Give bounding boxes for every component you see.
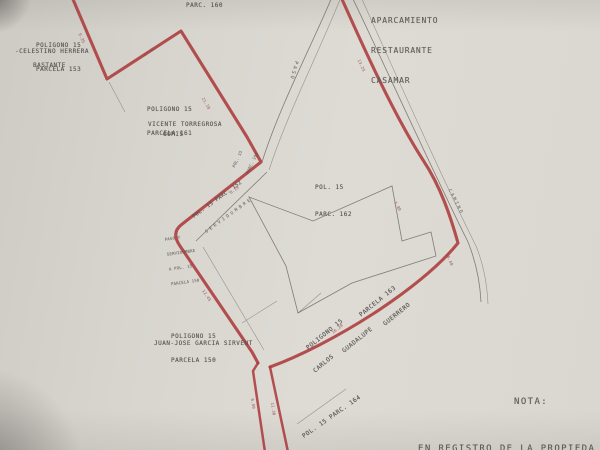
map-linework xyxy=(0,0,600,450)
annotation2-line1: POL. 15 xyxy=(231,145,245,168)
leader-line-150 xyxy=(242,301,277,323)
nota-text: EN REGISTRO DE LA PROPIEDA DE ALICANTE F… xyxy=(418,417,600,450)
annotation2-line2: PARC. 161 xyxy=(245,151,259,174)
label-owner-sirvent: JUAN-JOSE GARCIA SIRVENT xyxy=(154,340,253,348)
label-owner-bastante: BASTANTE xyxy=(33,62,66,70)
nota-text-line1: EN REGISTRO DE LA PROPIEDA xyxy=(418,443,600,450)
cadastral-map-photo: PARC. 160 APARCAMIENTO RESTAURANTE CASAM… xyxy=(0,0,600,450)
annotation-line3: A POL. 15 xyxy=(169,263,198,272)
center-parcel-step xyxy=(298,293,321,313)
label-owner-vicente: VICENTE TORREGROSA xyxy=(148,121,222,129)
label-parcela-150-line2: PARCELA 150 xyxy=(171,357,216,365)
label-restaurante-line2: RESTAURANTE xyxy=(371,46,438,56)
annotation-line4: PARCELA 150 xyxy=(171,277,200,286)
measurement-label: 11.30 xyxy=(268,402,278,416)
nota-title: NOTA: xyxy=(514,396,548,409)
leader-line-153 xyxy=(109,82,125,112)
label-restaurante-casamar: APARCAMIENTO RESTAURANTE CASAMAR xyxy=(371,0,438,106)
red-boundary-west xyxy=(72,0,261,363)
label-parcela-153: POLIGONO 15 PARCELA 153 xyxy=(36,26,81,90)
label-parcela-162: POL. 15 PARC. 162 xyxy=(315,165,352,237)
label-restaurante-line1: APARCAMIENTO xyxy=(371,16,438,26)
annotation-line2: SERVIDUMBRE xyxy=(166,248,195,257)
annotation-line1: PASO Y xyxy=(164,233,193,242)
road-top-edge-b xyxy=(269,0,341,170)
label-restaurante-line3: CASAMAR xyxy=(371,76,438,86)
label-owner-celestino: -CELESTINO HERRERA xyxy=(15,48,89,56)
label-owner-gomis: GOMIS xyxy=(163,131,184,139)
measurement-label: 6.90 xyxy=(248,398,257,409)
label-parcela-150: POLIGONO 15 PARCELA 150 xyxy=(171,317,216,381)
road-top-edge-a xyxy=(262,0,332,162)
label-parcela-162-line1: POL. 15 xyxy=(315,183,352,192)
label-parcela-161-line1: POLIGONO 15 xyxy=(147,106,192,114)
label-parc-160: PARC. 160 xyxy=(186,2,223,10)
label-parcela-162-line2: PARC. 162 xyxy=(315,210,352,219)
